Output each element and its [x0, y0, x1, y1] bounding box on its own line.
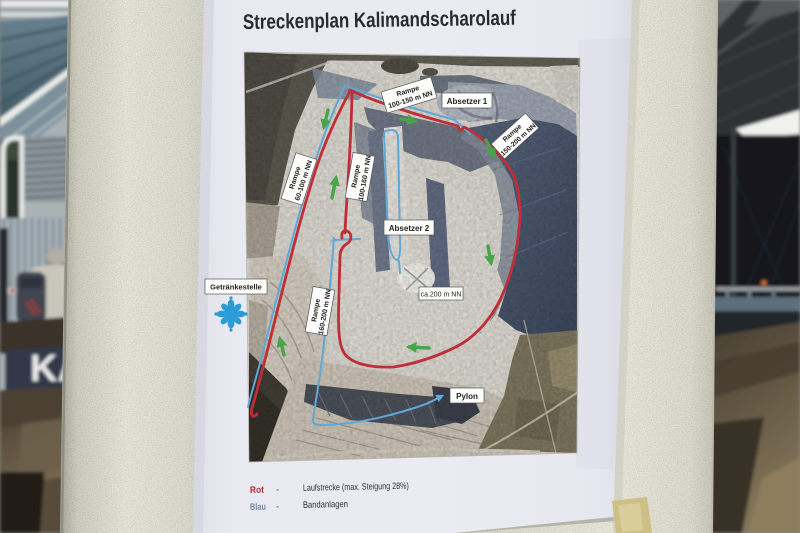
svg-text:Absetzer 2: Absetzer 2	[389, 224, 430, 233]
svg-text:Rot: Rot	[250, 485, 265, 496]
svg-text:Bandanlagen: Bandanlagen	[303, 499, 348, 510]
svg-text:Blau: Blau	[250, 502, 266, 513]
svg-text:-: -	[276, 484, 279, 495]
svg-text:ca.200 m NN: ca.200 m NN	[421, 292, 462, 299]
svg-text:Pylon: Pylon	[456, 392, 478, 401]
svg-text:Streckenplan Kalimandscharolau: Streckenplan Kalimandscharolauf	[243, 7, 517, 34]
svg-text:-: -	[276, 501, 279, 512]
svg-text:Getränkestelle: Getränkestelle	[210, 283, 262, 292]
svg-text:Absetzer 1: Absetzer 1	[447, 97, 488, 106]
